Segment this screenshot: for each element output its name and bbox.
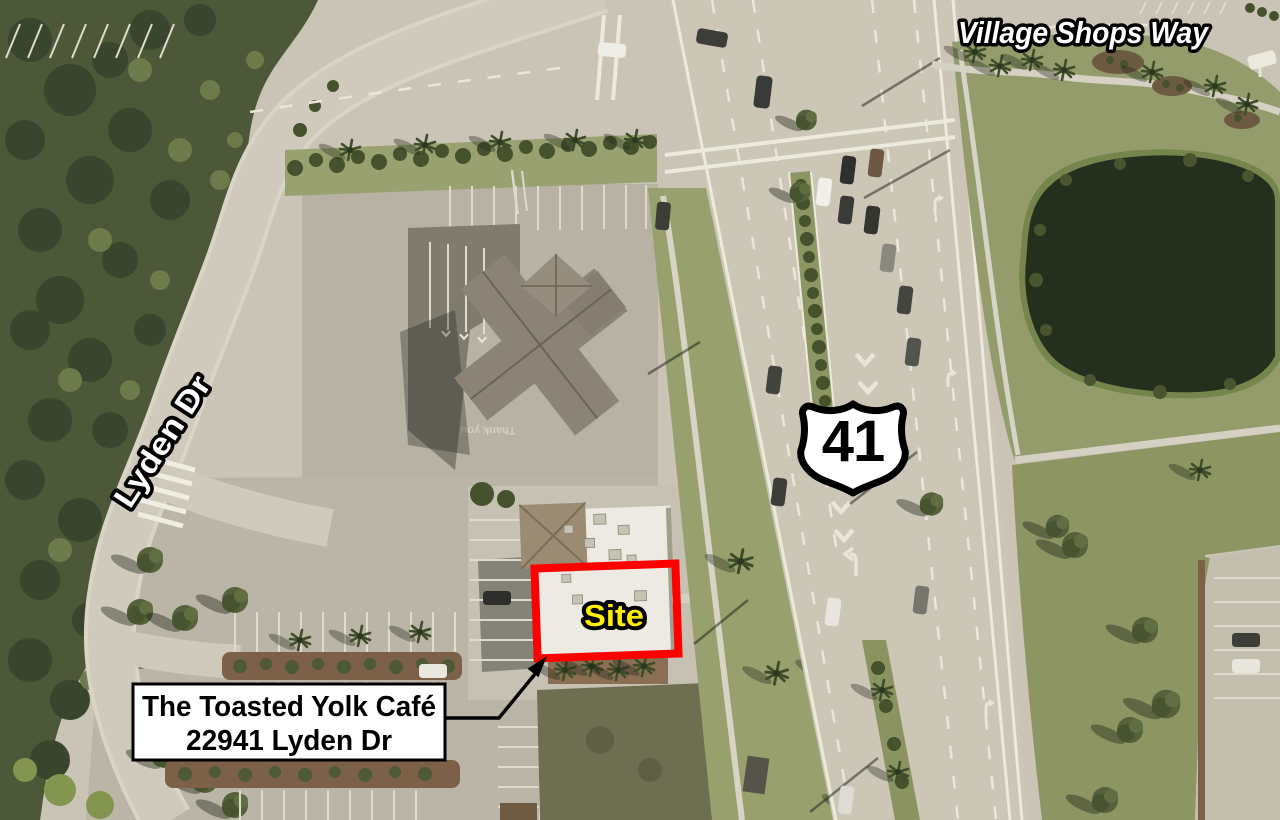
aerial-map: Thank you bbox=[0, 0, 1280, 820]
site-label: Site bbox=[584, 598, 644, 633]
thank-you-marking: Thank you bbox=[460, 424, 515, 436]
shield-number: 41 bbox=[822, 409, 885, 474]
callout-line2: 22941 Lyden Dr bbox=[186, 725, 392, 757]
street-label-village-shops-way: Village Shops Way bbox=[958, 15, 1210, 50]
aerial-photo: Thank you bbox=[0, 0, 1280, 820]
callout-line1: The Toasted Yolk Café bbox=[142, 691, 436, 723]
route-shield-us41: 41 bbox=[801, 404, 906, 493]
